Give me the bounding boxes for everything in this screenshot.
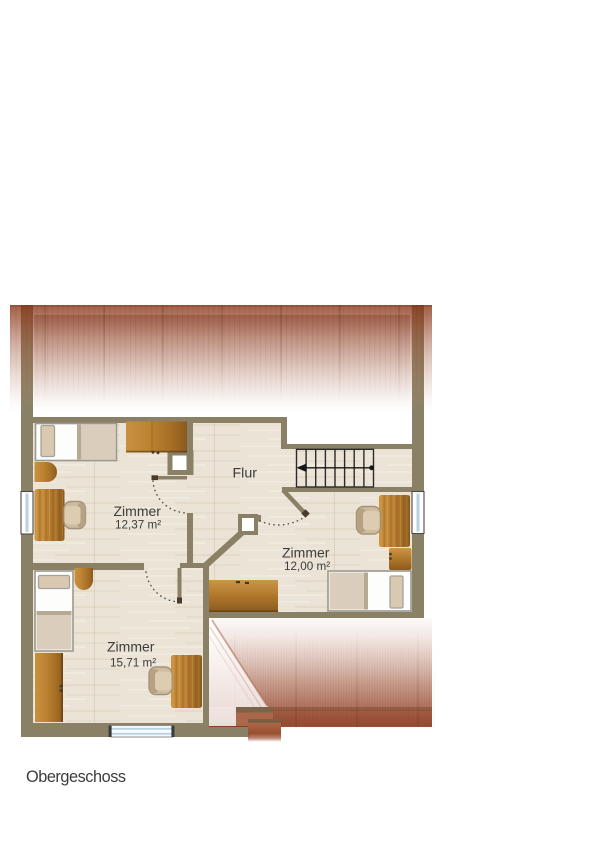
svg-text:12,37 m²: 12,37 m² [115, 519, 161, 532]
svg-text:15,71 m²: 15,71 m² [110, 657, 156, 670]
svg-text:12,00 m²: 12,00 m² [284, 560, 330, 573]
svg-text:Obergeschoss: Obergeschoss [26, 768, 126, 786]
svg-text:Zimmer: Zimmer [114, 503, 162, 519]
svg-text:Zimmer: Zimmer [107, 639, 155, 655]
svg-text:Flur: Flur [233, 466, 258, 482]
svg-text:Zimmer: Zimmer [282, 545, 330, 561]
